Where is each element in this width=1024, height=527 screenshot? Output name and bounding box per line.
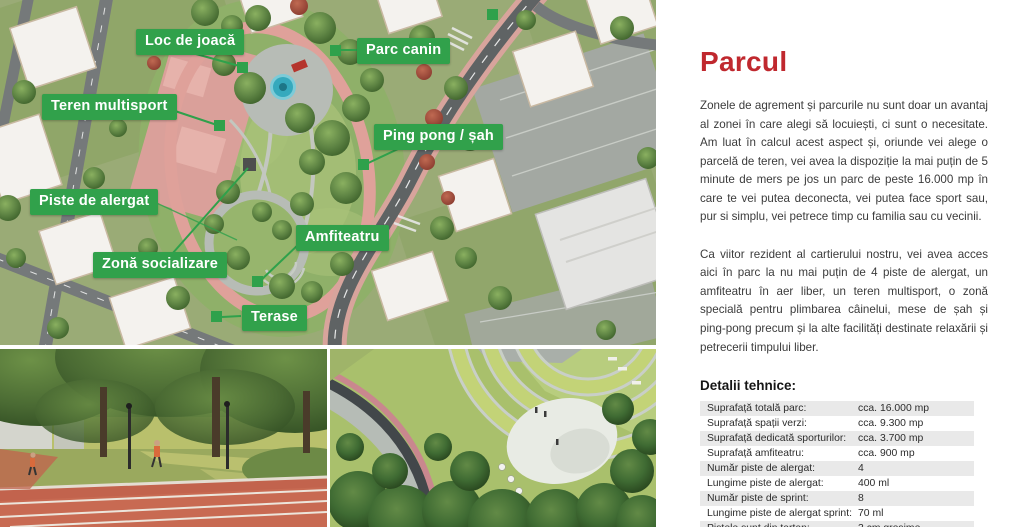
tech-row-value: cca. 9.300 mp <box>858 418 974 429</box>
tech-row-value: 4 <box>858 463 974 474</box>
map-label-loc-de-joaca: Loc de joacă <box>136 29 244 55</box>
media-column: Loc de joacă Parc canin Teren multisport… <box>0 0 656 527</box>
running-track-render <box>0 349 327 527</box>
tech-row-label: Număr piste de sprint: <box>707 493 858 504</box>
tech-row-value: 3 cm grosime <box>858 523 974 527</box>
tech-row: Suprafață spații verzi:cca. 9.300 mp <box>700 416 974 431</box>
tech-row: Lungime piste de alergat sprint:70 ml <box>700 506 974 521</box>
tech-row: Număr piste de sprint:8 <box>700 491 974 506</box>
masterplan-map: Loc de joacă Parc canin Teren multisport… <box>0 0 656 345</box>
amphitheater-photo <box>330 349 656 527</box>
tech-row-label: Suprafață totală parc: <box>707 403 858 414</box>
map-label-amfiteatru: Amfiteatru <box>296 225 389 251</box>
page-title: Parcul <box>700 46 986 78</box>
tech-row-label: Suprafață dedicată sporturilor: <box>707 433 858 444</box>
intro-paragraph: Zonele de agrement și parcurile nu sunt … <box>700 97 988 227</box>
tech-row-value: 70 ml <box>858 508 974 519</box>
tech-row: Suprafață dedicată sporturilor:cca. 3.70… <box>700 431 974 446</box>
tech-row-value: 8 <box>858 493 974 504</box>
tech-row-value: cca. 3.700 mp <box>858 433 974 444</box>
tech-row-value: cca. 16.000 mp <box>858 403 974 414</box>
tech-row: Suprafață totală parc:cca. 16.000 mp <box>700 401 974 416</box>
tech-details-title: Detalii tehnice: <box>700 378 986 393</box>
map-label-piste-de-alergat: Piste de alergat <box>30 189 158 215</box>
tech-row: Suprafață amfiteatru:cca. 900 mp <box>700 446 974 461</box>
running-track-photo <box>0 349 327 527</box>
park-brochure-page: Loc de joacă Parc canin Teren multisport… <box>0 0 1024 527</box>
map-label-terase: Terase <box>242 305 307 331</box>
tech-row: Lungime piste de alergat:400 ml <box>700 476 974 491</box>
map-label-parc-canin: Parc canin <box>357 38 450 64</box>
info-panel: Parcul Zonele de agrement și parcurile n… <box>656 0 1024 527</box>
map-label-ping-pong-sah: Ping pong / șah <box>374 124 503 150</box>
second-paragraph: Ca viitor rezident al cartierului nostru… <box>700 246 988 357</box>
map-label-teren-multisport: Teren multisport <box>42 94 177 120</box>
tech-row: Pistele sunt din tartan:3 cm grosime <box>700 521 974 527</box>
amphitheater-render <box>330 349 656 527</box>
map-label-zona-socializare: Zonă socializare <box>93 252 227 278</box>
tech-row-value: 400 ml <box>858 478 974 489</box>
tech-row-label: Lungime piste de alergat: <box>707 478 858 489</box>
tech-row-value: cca. 900 mp <box>858 448 974 459</box>
tech-row: Număr piste de alergat:4 <box>700 461 974 476</box>
tech-row-label: Lungime piste de alergat sprint: <box>707 508 858 519</box>
tech-row-label: Suprafață amfiteatru: <box>707 448 858 459</box>
tech-row-label: Suprafață spații verzi: <box>707 418 858 429</box>
masterplan-render <box>0 0 656 345</box>
tech-row-label: Număr piste de alergat: <box>707 463 858 474</box>
tech-row-label: Pistele sunt din tartan: <box>707 523 858 527</box>
tech-table: Suprafață totală parc:cca. 16.000 mpSupr… <box>700 401 974 527</box>
